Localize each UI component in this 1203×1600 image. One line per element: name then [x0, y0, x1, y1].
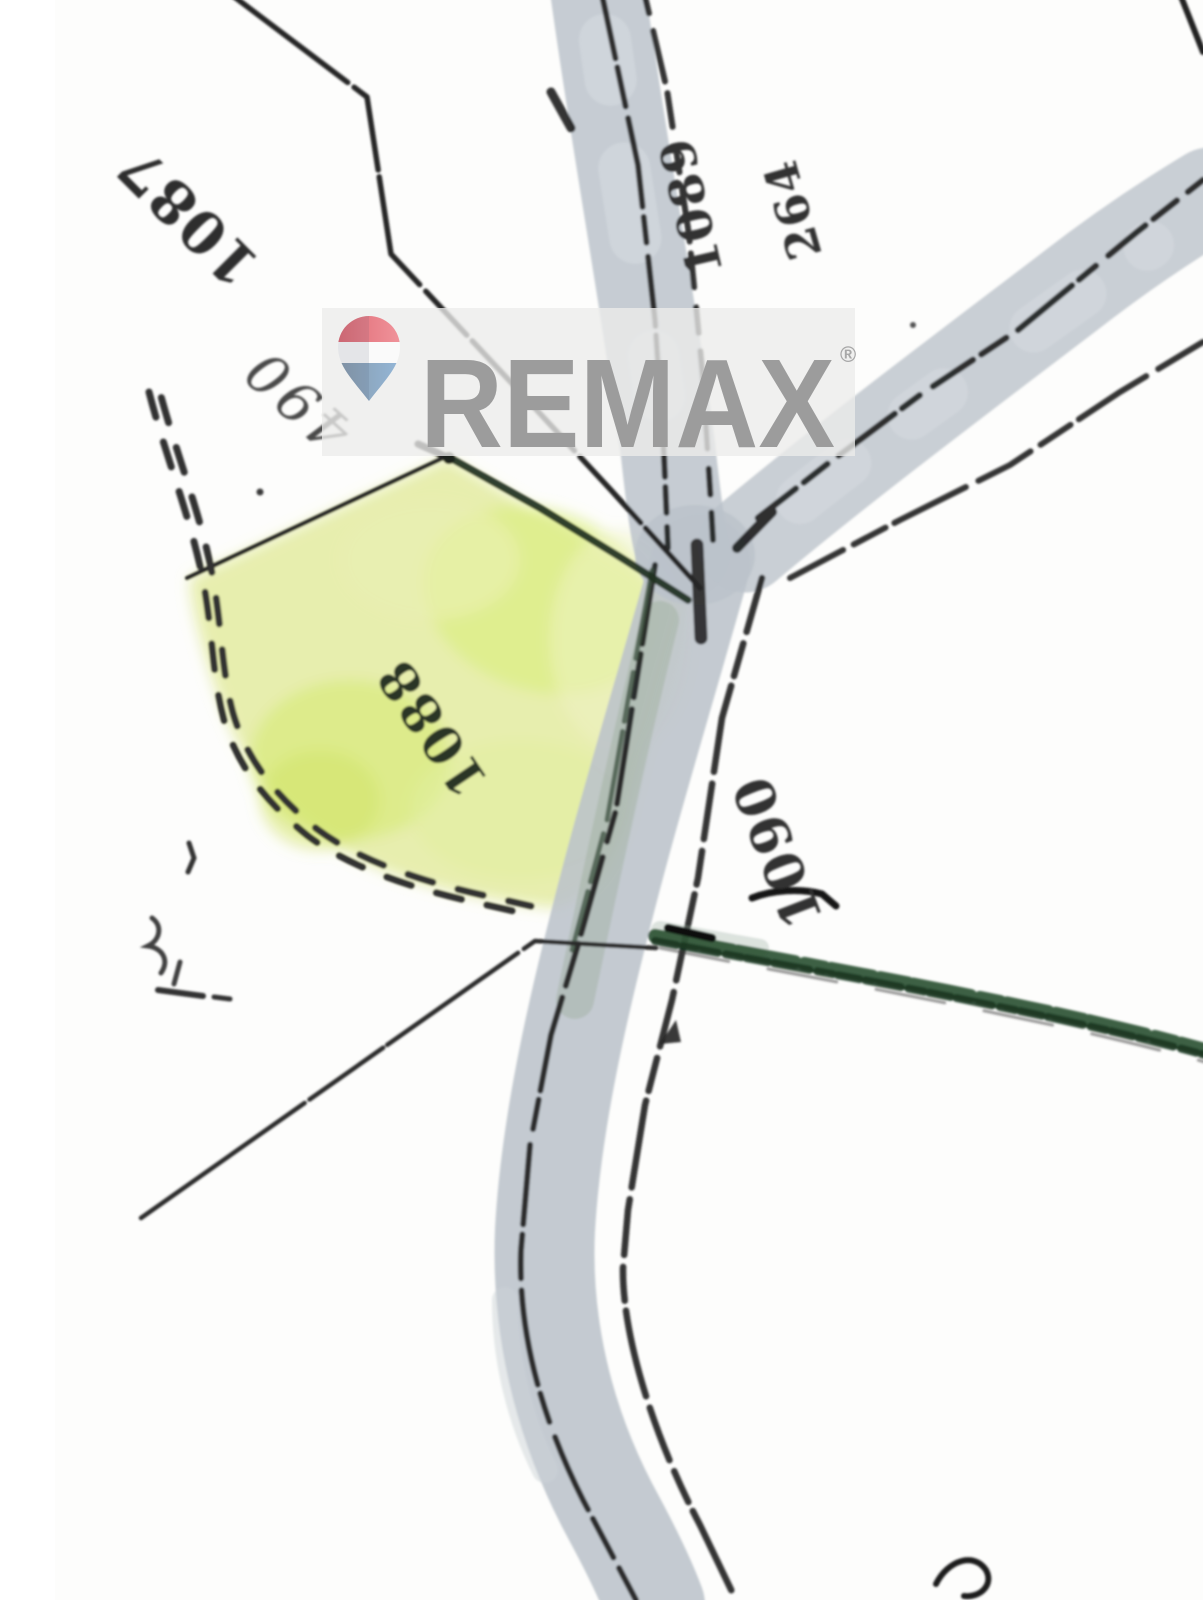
watermark: REMAX ® — [322, 308, 856, 474]
scanned-map: 1087 490 1089 264 1088 1090 REMAX ® — [0, 0, 1203, 1600]
scan-left-margin — [0, 0, 55, 1600]
survey-dot — [910, 322, 916, 328]
survey-dot — [257, 489, 264, 496]
junction-heavy-mark — [697, 545, 701, 638]
remax-wordmark: REMAX — [420, 333, 835, 474]
registered-trademark-symbol: ® — [840, 342, 856, 367]
underline-dash — [214, 997, 230, 999]
